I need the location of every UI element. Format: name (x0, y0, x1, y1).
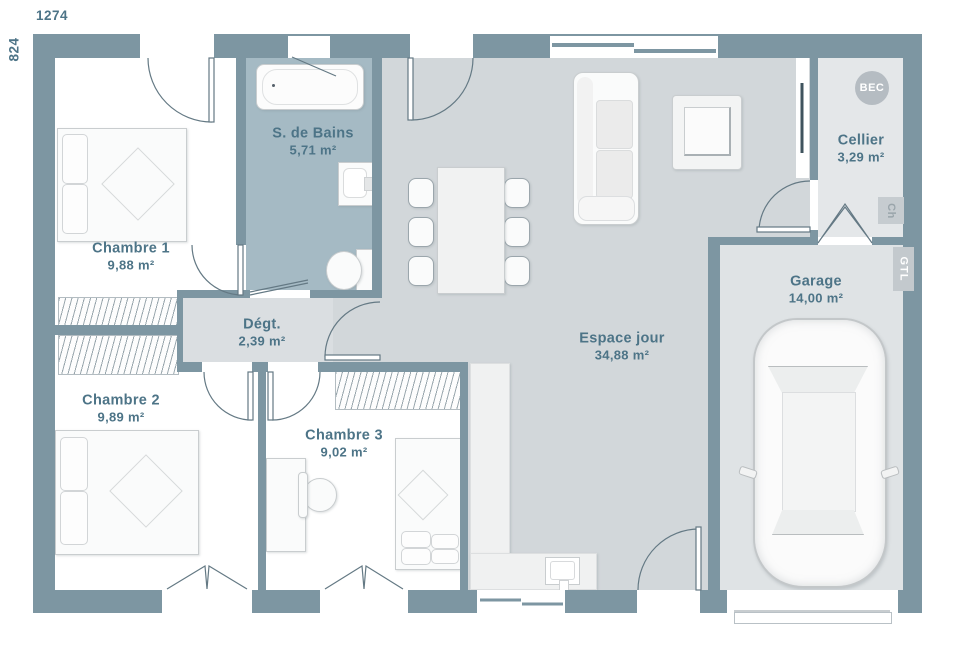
wardrobe-chambre3-icon (335, 370, 462, 410)
pillow-icon (62, 184, 88, 234)
window-chambre1 (140, 34, 214, 58)
gtl-tag: GTL (893, 247, 914, 291)
wall-exterior-left (33, 34, 55, 613)
bay-window-living (550, 36, 718, 58)
hallway-floor (183, 298, 333, 362)
room-name: Chambre 3 (305, 428, 383, 445)
bec-label: BEC (860, 82, 885, 94)
sofa-cushion-icon (596, 150, 633, 199)
sofa-chaise-icon (578, 196, 635, 221)
garage-door-panel (734, 612, 892, 624)
sliding-door-cellier (796, 58, 809, 178)
dining-chair-icon (504, 217, 530, 247)
wall-chambre2-chambre3 (258, 372, 266, 591)
dining-table-icon (437, 167, 505, 294)
wall-hall-left-stub (177, 290, 183, 372)
window-chambre2 (162, 590, 252, 614)
door-leaf (268, 372, 273, 420)
dining-chair-icon (408, 217, 434, 247)
wall-exterior-right (903, 34, 922, 613)
gtl-label: GTL (898, 257, 910, 282)
door-leaf (248, 372, 253, 420)
wall-sdb-living (372, 56, 382, 298)
sofa-cushion-icon (596, 100, 633, 149)
dining-chair-icon (504, 178, 530, 208)
room-label-chambre1: Chambre 1 9,88 m² (92, 241, 170, 274)
garage-door-opening (727, 590, 898, 613)
bathtub-inner-icon (262, 69, 358, 105)
pillow-icon (60, 491, 88, 545)
french-door-living (410, 34, 473, 58)
room-area: 9,89 m² (82, 410, 160, 426)
wall-living-cellier-lower (810, 230, 818, 237)
entrance-door-opening (637, 590, 700, 613)
door-arc (192, 245, 242, 295)
pillow-icon (60, 437, 88, 491)
room-area: 9,88 m² (92, 258, 170, 274)
room-area: 9,02 m² (305, 445, 383, 461)
wardrobe-chambre2-icon (58, 335, 179, 375)
wall-chambre1-sdb (236, 56, 246, 245)
pillow-icon (62, 134, 88, 184)
window-bathroom (288, 36, 330, 58)
door-leaf (238, 245, 243, 295)
wall-garage-top-left (708, 237, 818, 245)
wall-chambre1-chambre2 (55, 325, 177, 335)
wall-garage-top-right (872, 237, 905, 245)
room-name: Chambre 2 (82, 393, 160, 410)
toilet-bowl-icon (326, 251, 362, 290)
car-windshield-icon (768, 366, 868, 393)
ch-label: Ch (885, 203, 897, 219)
door-arc (272, 372, 320, 420)
wall-chambre3-top (318, 362, 468, 372)
kitchen-sink-basin-icon (550, 561, 575, 580)
window-kitchen (477, 590, 565, 614)
window-tilt-symbol (325, 566, 403, 589)
wall-living-garage (708, 237, 720, 591)
bathtub-drain-icon (272, 84, 275, 87)
wardrobe-chambre1-icon (58, 297, 179, 327)
window-chambre3 (320, 590, 408, 614)
dimension-height: 824 (7, 37, 22, 61)
room-name: Chambre 1 (92, 241, 170, 258)
pillow-icon (401, 548, 431, 565)
door-arc (204, 372, 252, 420)
dining-chair-icon (504, 256, 530, 286)
wall-chambre3-living (460, 362, 468, 591)
car-roof-icon (782, 392, 856, 512)
bec-badge: BEC (855, 71, 889, 105)
room-label-chambre3: Chambre 3 9,02 m² (305, 428, 383, 461)
desk-chair-back-icon (298, 472, 308, 518)
armchair-seat-icon (684, 107, 731, 156)
water-heater-tag: Ch (878, 197, 904, 224)
pillow-icon (431, 534, 459, 549)
wall-living-cellier-upper (810, 56, 818, 180)
wall-sdb-bottom-right (310, 290, 377, 298)
sofa-backrest-icon (577, 77, 593, 205)
pillow-icon (401, 531, 431, 548)
wall-sdb-bottom-left (177, 290, 250, 298)
door-leaf (209, 58, 214, 122)
dimension-width: 1274 (36, 8, 68, 23)
door-arc (148, 58, 212, 122)
dining-chair-icon (408, 178, 434, 208)
desk-chair-icon (303, 478, 337, 512)
pillow-icon (431, 549, 459, 564)
car-rear-window-icon (772, 510, 864, 535)
room-label-chambre2: Chambre 2 9,89 m² (82, 393, 160, 426)
wall-hall-bottom-b (252, 362, 268, 372)
window-tilt-symbol (167, 566, 247, 589)
floor-plan: Chambre 1 9,88 m² Chambre 2 9,89 m² Cham… (0, 0, 960, 646)
wall-hall-bottom-a (177, 362, 202, 372)
dining-chair-icon (408, 256, 434, 286)
